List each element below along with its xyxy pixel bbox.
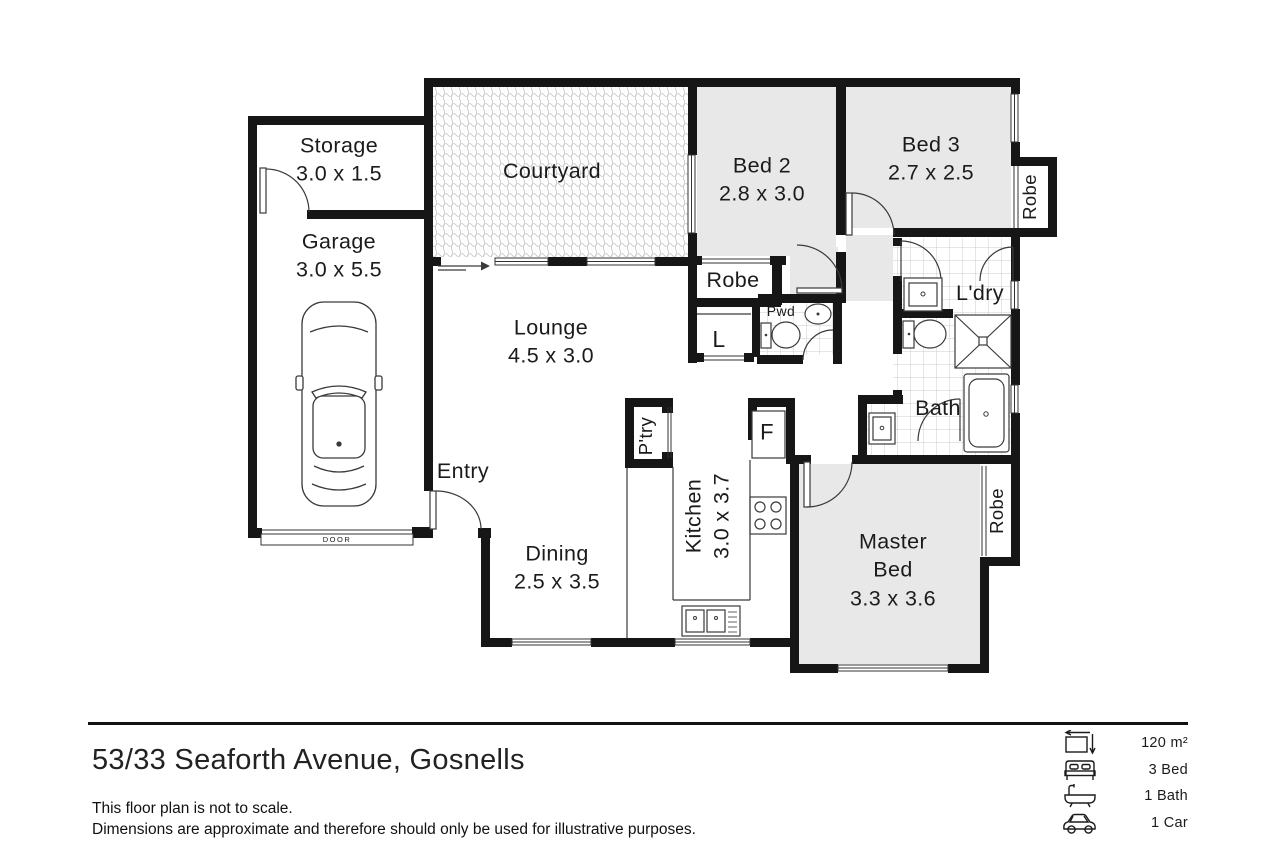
hall-fill-right <box>846 235 893 301</box>
bed-icon <box>1058 758 1102 782</box>
car-icon-footer <box>1058 811 1102 835</box>
stat-bed: 3 Bed <box>1058 757 1188 783</box>
room-label-bath: Bath <box>915 394 961 422</box>
robe-sliding-doors <box>702 259 770 263</box>
window <box>1011 94 1018 142</box>
stove-icon <box>750 497 786 534</box>
disclaimer: This floor plan is not to scale. Dimensi… <box>92 798 696 840</box>
kitchen-sink-icon <box>682 606 740 636</box>
room-label-robe-bed2: Robe <box>707 266 760 294</box>
entry-door <box>430 491 481 529</box>
floor-plan: Storage 3.0 x 1.5 Garage 3.0 x 5.5 Court… <box>0 0 1284 720</box>
window <box>495 258 548 265</box>
stat-car: 1 Car <box>1058 810 1188 836</box>
powder-sink-icon <box>805 304 831 324</box>
vanity-sink-icon <box>869 413 895 444</box>
room-label-dining: Dining 2.5 x 3.5 <box>514 540 600 597</box>
room-label-fridge: F <box>760 417 774 446</box>
address-title: 53/33 Seaforth Avenue, Gosnells <box>92 744 525 777</box>
window <box>688 155 695 233</box>
sliding-door-arrow <box>438 262 490 271</box>
room-label-pantry: P'try <box>634 417 658 455</box>
room-label-master: Master Bed 3.3 x 3.6 <box>850 527 936 612</box>
stat-area-label: 120 m² <box>1102 735 1188 751</box>
window <box>587 258 655 265</box>
disclaimer-line2: Dimensions are approximate and therefore… <box>92 819 696 840</box>
laundry-tub-icon <box>904 278 942 311</box>
window <box>1011 281 1018 309</box>
room-label-laundry: L'dry <box>956 279 1004 307</box>
property-stats: 120 m² 3 Bed <box>1058 730 1188 836</box>
car-icon <box>296 302 382 506</box>
pantry-opening <box>668 407 671 458</box>
room-label-linen: L <box>712 324 725 354</box>
room-label-garage: Garage 3.0 x 5.5 <box>296 228 382 285</box>
stat-bath: 1 Bath <box>1058 783 1188 809</box>
toilet-icon <box>903 320 946 348</box>
room-label-storage: Storage 3.0 x 1.5 <box>296 132 382 189</box>
area-icon <box>1058 730 1102 756</box>
footer: 53/33 Seaforth Avenue, Gosnells This flo… <box>0 716 1284 856</box>
window <box>512 639 591 645</box>
shower-icon <box>955 315 1011 368</box>
room-label-powder: Pwd <box>767 302 795 320</box>
room-label-bed3: Bed 3 2.7 x 2.5 <box>888 131 974 188</box>
room-label-lounge: Lounge 4.5 x 3.0 <box>508 314 594 371</box>
stat-bath-label: 1 Bath <box>1102 788 1188 804</box>
room-label-bed2: Bed 2 2.8 x 3.0 <box>719 152 805 209</box>
room-label-robe-master: Robe <box>985 488 1009 534</box>
window <box>675 639 750 645</box>
floor-plan-page: Storage 3.0 x 1.5 Garage 3.0 x 5.5 Court… <box>0 0 1284 856</box>
linen-doors <box>704 356 744 360</box>
stat-bed-label: 3 Bed <box>1102 762 1188 778</box>
room-label-kitchen: Kitchen 3.0 x 3.7 <box>680 473 737 559</box>
room-label-entry: Entry <box>437 457 489 485</box>
powder-toilet-icon <box>761 322 800 348</box>
divider-line <box>88 722 1188 725</box>
garage-door-label: DOOR <box>323 535 352 545</box>
disclaimer-line1: This floor plan is not to scale. <box>92 798 696 819</box>
stat-car-label: 1 Car <box>1102 815 1188 831</box>
floor-plan-graphic <box>0 0 1284 720</box>
stat-area: 120 m² <box>1058 730 1188 756</box>
window <box>1011 385 1018 413</box>
bathtub-icon <box>964 374 1009 452</box>
bath-icon <box>1058 784 1102 808</box>
room-label-courtyard: Courtyard <box>503 157 601 185</box>
room-label-robe-bed3: Robe <box>1018 174 1042 220</box>
window <box>838 665 948 671</box>
